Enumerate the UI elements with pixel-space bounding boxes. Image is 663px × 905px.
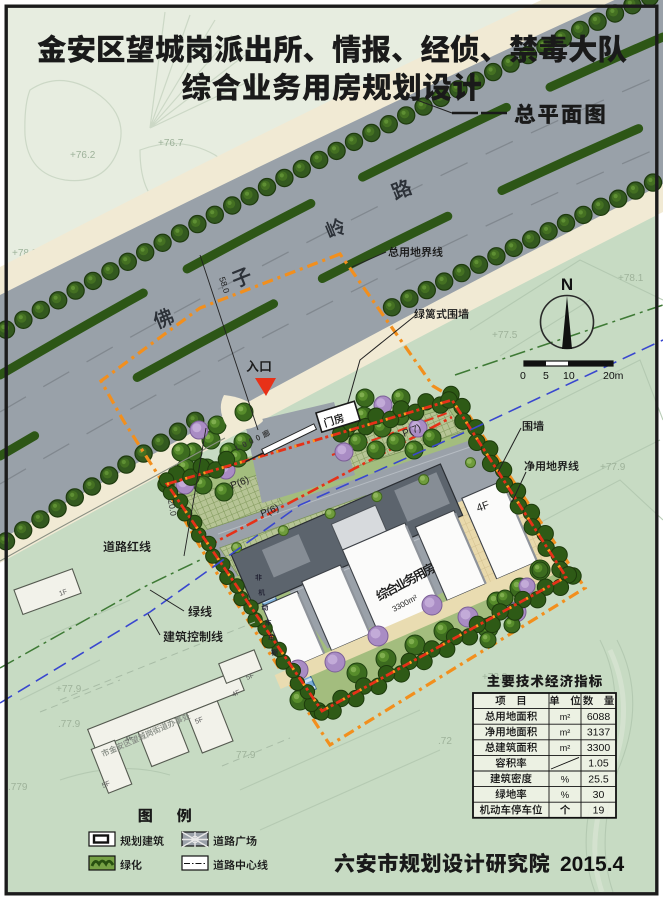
svg-text:m²: m² — [560, 728, 571, 738]
svg-text:5: 5 — [543, 370, 549, 382]
svg-text:25.5: 25.5 — [588, 773, 609, 785]
svg-text:+76.7: +76.7 — [158, 138, 184, 149]
svg-text:+77.9: +77.9 — [56, 684, 82, 695]
svg-text:30: 30 — [593, 789, 605, 801]
svg-text:3137: 3137 — [587, 727, 611, 739]
svg-text:6088: 6088 — [587, 711, 611, 723]
svg-text:2015.4: 2015.4 — [560, 853, 625, 876]
svg-text:m²: m² — [560, 712, 571, 722]
svg-text:+76.2: +76.2 — [70, 150, 96, 161]
svg-text:.779: .779 — [8, 782, 28, 793]
svg-text:N: N — [561, 275, 573, 294]
svg-text:10: 10 — [563, 370, 575, 382]
svg-text:+77.9: +77.9 — [600, 462, 626, 473]
svg-text:0: 0 — [520, 370, 526, 382]
svg-text:.72: .72 — [438, 736, 452, 747]
svg-text:+77.5: +77.5 — [492, 330, 518, 341]
svg-text:19: 19 — [593, 805, 605, 817]
svg-text:%: % — [561, 774, 570, 785]
svg-text:m²: m² — [560, 743, 571, 753]
svg-text:3300: 3300 — [587, 742, 611, 754]
svg-text:1.05: 1.05 — [588, 758, 609, 770]
svg-text:%: % — [561, 790, 570, 801]
svg-text:20m: 20m — [603, 370, 624, 382]
svg-text:+78.1: +78.1 — [618, 273, 644, 284]
svg-text:.77.9: .77.9 — [58, 719, 81, 730]
